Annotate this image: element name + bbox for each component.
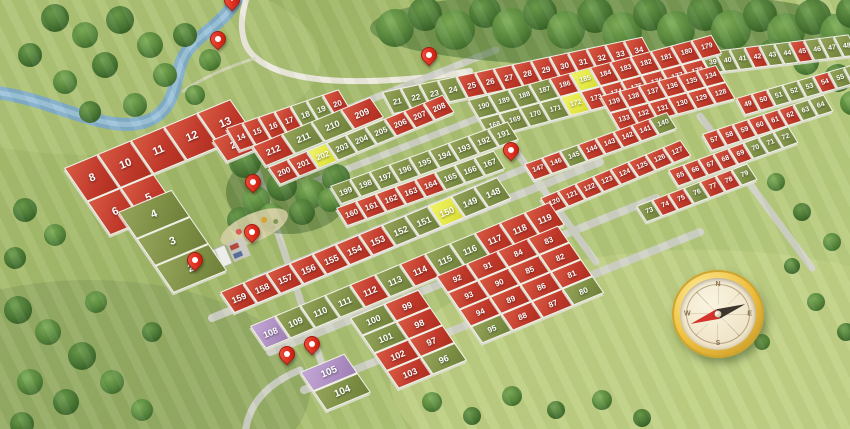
plot-number: 190: [477, 102, 490, 112]
plot-number: 162: [383, 193, 399, 206]
plot-number: 200: [276, 165, 292, 178]
plot-number: 142: [621, 131, 634, 142]
plot-number: 203: [334, 141, 350, 154]
plot-number: 64: [816, 101, 826, 110]
plot-number: 53: [805, 82, 814, 91]
plot-number: 10: [118, 156, 134, 172]
plot-number: 110: [312, 304, 329, 319]
plot-number: 211: [295, 130, 312, 145]
plot-number: 14: [235, 131, 246, 142]
plot-number: 205: [373, 125, 389, 138]
plot-number: 154: [345, 242, 363, 257]
plot-number: 102: [389, 348, 407, 363]
plot-number: 191: [496, 128, 512, 141]
plot-number: 204: [353, 133, 369, 146]
plot-number: 196: [397, 163, 413, 176]
plot-number: 96: [437, 352, 450, 365]
plot-number: 159: [230, 290, 248, 305]
plot-number: 20: [332, 98, 343, 109]
plot-number: 126: [653, 153, 666, 164]
plot-number: 206: [392, 117, 408, 130]
plot-number: 61: [771, 116, 781, 125]
plot-number: 197: [377, 171, 393, 184]
estate-map: 81011121365 432 214 14151617181920 21222…: [0, 0, 850, 429]
plot-number: 135: [685, 76, 698, 86]
plot-number: 207: [412, 109, 428, 122]
plot-number: 78: [724, 176, 734, 185]
plot-number: 201: [295, 157, 311, 170]
plot-number: 147: [531, 164, 544, 175]
plot-number: 208: [431, 101, 447, 114]
plot-number: 172: [569, 99, 582, 109]
plot-number: 133: [618, 114, 631, 124]
plot-number: 85: [524, 264, 536, 276]
plot-number: 127: [670, 146, 683, 157]
plot-number: 128: [714, 88, 727, 98]
plot-number: 146: [549, 157, 562, 168]
plot-number: 28: [522, 68, 533, 79]
plot-number: 182: [639, 58, 652, 68]
plot-number: 52: [790, 87, 799, 96]
plot-number: 90: [493, 276, 505, 288]
plot-number: 30: [559, 60, 570, 71]
plot-number: 45: [797, 47, 806, 55]
plot-number: 187: [538, 85, 551, 95]
plot-number: 167: [482, 157, 498, 170]
plot-number: 3: [167, 235, 177, 248]
plot-number: 101: [376, 330, 394, 345]
plot-number: 67: [706, 160, 716, 169]
plot-number: 27: [503, 72, 514, 83]
plot-number: 92: [451, 272, 463, 284]
plot-number: 91: [482, 260, 494, 272]
plot-number: 104: [332, 384, 352, 401]
plot-number: 108: [261, 325, 279, 340]
plot-number: 32: [596, 52, 607, 63]
plot-number: 113: [386, 273, 403, 288]
plot-number: 184: [599, 69, 612, 79]
plot-number: 82: [554, 251, 566, 263]
plot-number: 97: [425, 334, 438, 347]
plot-number: 73: [644, 206, 654, 215]
plot-number: 18: [300, 109, 311, 120]
plot-number: 46: [812, 45, 821, 53]
plot-number: 111: [337, 294, 354, 309]
plot-number: 81: [566, 268, 578, 280]
plot-number: 209: [354, 106, 372, 121]
plot-number: 48: [842, 42, 850, 50]
plot-number: 17: [283, 114, 294, 125]
plot-number: 88: [516, 310, 528, 322]
plot-number: 58: [725, 130, 735, 139]
plot-number: 98: [413, 317, 426, 330]
plot-number: 42: [753, 53, 762, 61]
plot-number: 169: [508, 115, 521, 125]
plot-number: 94: [474, 306, 486, 318]
plot-number: 149: [461, 195, 479, 210]
plot-number: 8: [87, 171, 97, 184]
plot-number: 160: [344, 207, 360, 220]
plot-number: 180: [680, 47, 693, 57]
plot-number: 29: [541, 64, 552, 75]
plot-number: 152: [392, 223, 410, 238]
plot-number: 63: [801, 106, 811, 115]
plot-number: 130: [676, 99, 689, 109]
plot-number: 89: [505, 293, 517, 305]
compass-north-label: N: [715, 281, 720, 288]
plot-number: 80: [577, 285, 589, 297]
compass-needle: [689, 299, 747, 328]
plot-number: 62: [786, 111, 796, 120]
plot-number: 43: [768, 51, 777, 59]
plot-number: 199: [338, 185, 354, 198]
plot-number: 193: [456, 142, 472, 155]
plot-number: 70: [751, 144, 761, 153]
plot-number: 125: [635, 161, 648, 172]
plot-number: 54: [820, 78, 829, 87]
plot-number: 210: [324, 118, 342, 133]
plot-number: 12: [184, 129, 200, 145]
plot-number: 156: [299, 262, 317, 277]
compass: N E S W: [672, 270, 764, 358]
plot-number: 145: [567, 151, 580, 162]
plot-number: 148: [484, 185, 502, 200]
compass-west-label: W: [684, 311, 691, 318]
plot-number: 79: [740, 170, 750, 179]
plot-number: 139: [608, 97, 621, 107]
plot-number: 77: [708, 182, 718, 191]
plot-number: 31: [578, 56, 589, 67]
plot-number: 69: [736, 149, 746, 158]
plot-number: 136: [666, 82, 679, 92]
plot-number: 112: [361, 283, 378, 298]
plot-number: 138: [627, 92, 640, 102]
plot-number: 114: [411, 263, 428, 278]
plot-number: 21: [392, 96, 403, 107]
plot-number: 122: [583, 182, 596, 193]
plot-number: 166: [462, 164, 478, 177]
plot-number: 41: [738, 55, 747, 63]
plot-number: 83: [543, 234, 555, 246]
plot-number: 49: [744, 100, 753, 109]
plot-number: 119: [536, 211, 553, 226]
plot-number: 157: [276, 271, 294, 286]
plot-number: 84: [512, 247, 524, 259]
plot-number: 25: [466, 80, 477, 91]
plot-number: 59: [740, 126, 750, 135]
plot-number: 140: [656, 118, 669, 129]
plot-number: 158: [253, 281, 271, 296]
plot-number: 19: [316, 103, 327, 114]
plot-number: 181: [660, 53, 673, 63]
plot-number: 87: [547, 298, 559, 310]
plot-number: 95: [486, 323, 498, 335]
plot-number: 16: [267, 120, 278, 131]
plot-number: 192: [476, 135, 492, 148]
plot-number: 170: [528, 110, 541, 120]
plot-number: 103: [401, 365, 419, 380]
plot-number: 76: [692, 188, 702, 197]
plot-number: 105: [319, 364, 339, 381]
masterplan-scene: 81011121365 432 214 14151617181920 21222…: [0, 0, 850, 429]
plot-number: 202: [315, 149, 331, 162]
plot-number: 161: [363, 200, 379, 213]
plot-number: 109: [286, 314, 304, 329]
plot-number: 179: [700, 42, 713, 52]
plot-number: 15: [251, 125, 262, 136]
plot-number: 151: [415, 214, 433, 229]
plot-number: 129: [695, 93, 708, 103]
plot-number: 68: [721, 154, 731, 163]
plot-number: 164: [423, 178, 439, 191]
plot-block-west-green: 432: [118, 190, 227, 293]
plot-number: 212: [265, 142, 283, 157]
plot-number: 74: [660, 200, 670, 209]
plot-number: 124: [618, 168, 631, 179]
plot-number: 143: [603, 138, 616, 149]
plot-number: 141: [639, 125, 652, 136]
plot-number: 44: [782, 49, 791, 57]
plot-number: 194: [436, 149, 452, 162]
plot-number: 4: [149, 208, 159, 221]
plot-number: 11: [151, 143, 166, 159]
plot-number: 50: [759, 96, 768, 105]
plot-number: 47: [827, 44, 836, 52]
plot-number: 198: [357, 178, 373, 191]
plot-number: 22: [410, 92, 421, 103]
plot-number: 134: [705, 71, 718, 81]
plot-number: 57: [710, 135, 720, 144]
plot-number: 86: [535, 281, 547, 293]
compass-south-label: S: [716, 340, 721, 347]
plot-number: 189: [497, 96, 510, 106]
plot-number: 185: [578, 75, 591, 85]
plot-number: 144: [585, 144, 598, 155]
plot-number: 75: [676, 194, 686, 203]
plot-number: 123: [600, 175, 613, 186]
plot-number: 93: [463, 289, 475, 301]
plot-number: 132: [637, 109, 650, 119]
plot-number: 24: [448, 84, 459, 95]
plot-number: 163: [403, 185, 419, 198]
plot-number: 195: [417, 156, 433, 169]
plot-number: 153: [369, 233, 387, 248]
plot-number: 188: [518, 91, 531, 101]
plot-number: 51: [774, 91, 783, 100]
plot-number: 72: [781, 133, 791, 142]
plot-number: 65: [676, 171, 686, 180]
plot-number: 186: [558, 80, 571, 90]
plot-number: 117: [486, 232, 503, 247]
plot-number: 66: [691, 165, 701, 174]
plot-number: 115: [436, 252, 453, 267]
plot-number: 118: [511, 221, 528, 236]
plot-number: 171: [549, 104, 562, 114]
compass-face: N E S W: [680, 278, 756, 350]
plot-number: 26: [485, 76, 496, 87]
plot-number: 137: [647, 87, 660, 97]
plot-number: 55: [836, 73, 845, 82]
plot-number: 99: [401, 299, 414, 312]
plot-number: 155: [322, 252, 340, 267]
plot-number: 121: [565, 190, 578, 201]
plot-number: 183: [619, 64, 632, 74]
plot-block-104-105: 105104: [300, 354, 371, 411]
plot-number: 60: [755, 121, 765, 130]
plot-number: 71: [766, 138, 776, 147]
plot-number: 116: [461, 242, 478, 257]
compass-east-label: E: [747, 311, 752, 318]
plot-number: 150: [438, 204, 456, 219]
plot-number: 165: [442, 171, 458, 184]
plot-number: 100: [364, 312, 382, 327]
